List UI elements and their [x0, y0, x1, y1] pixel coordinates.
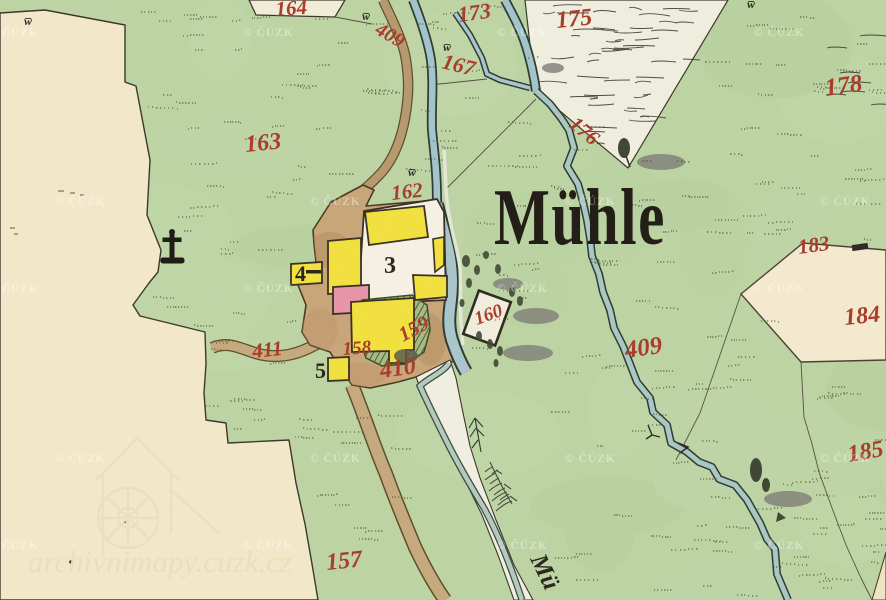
svg-text:© ČÚZK: © ČÚZK — [565, 194, 616, 208]
svg-text:© ČÚZK: © ČÚZK — [55, 451, 106, 465]
svg-text:© ČÚZK: © ČÚZK — [0, 538, 39, 552]
svg-text:© ČÚZK: © ČÚZK — [754, 538, 805, 552]
svg-text:© ČÚZK: © ČÚZK — [497, 281, 548, 295]
svg-text:© ČÚZK: © ČÚZK — [310, 194, 361, 208]
svg-text:© ČÚZK: © ČÚZK — [310, 451, 361, 465]
svg-text:© ČÚZK: © ČÚZK — [820, 194, 871, 208]
svg-text:© ČÚZK: © ČÚZK — [497, 538, 548, 552]
svg-text:© ČÚZK: © ČÚZK — [0, 281, 39, 295]
svg-text:© ČÚZK: © ČÚZK — [0, 25, 39, 39]
svg-text:© ČÚZK: © ČÚZK — [754, 281, 805, 295]
svg-text:© ČÚZK: © ČÚZK — [820, 451, 871, 465]
svg-text:© ČÚZK: © ČÚZK — [754, 25, 805, 39]
svg-text:© ČÚZK: © ČÚZK — [243, 538, 294, 552]
svg-text:© ČÚZK: © ČÚZK — [55, 194, 106, 208]
svg-text:© ČÚZK: © ČÚZK — [243, 281, 294, 295]
svg-text:© ČÚZK: © ČÚZK — [243, 25, 294, 39]
svg-text:© ČÚZK: © ČÚZK — [565, 451, 616, 465]
svg-text:© ČÚZK: © ČÚZK — [497, 25, 548, 39]
